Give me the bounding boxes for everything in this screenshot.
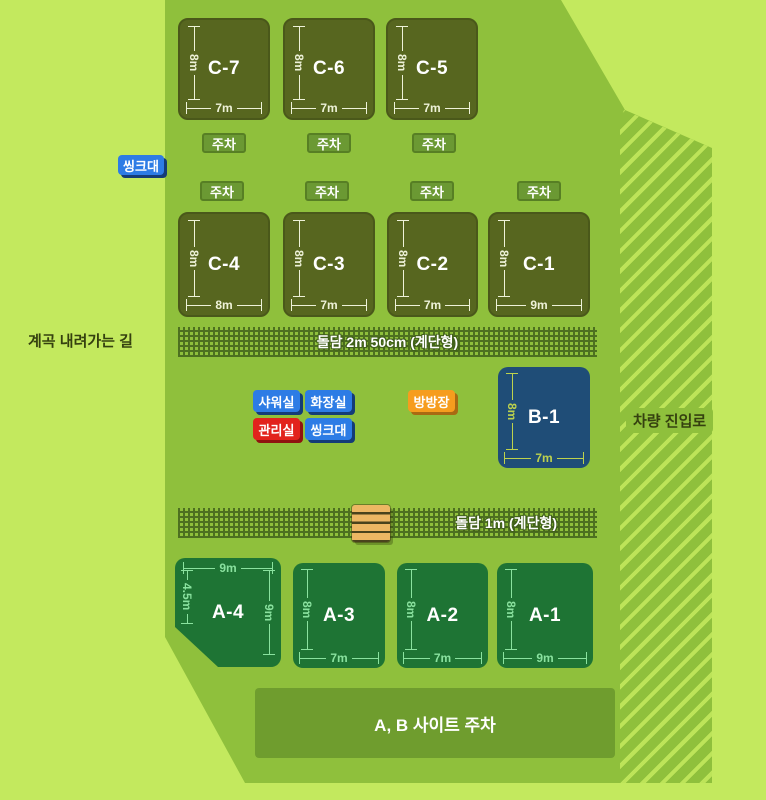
dimension-height: 8m	[293, 26, 305, 100]
parking-badge: 주차	[200, 181, 244, 201]
toilet-badge: 화장실	[305, 390, 352, 412]
stairs-icon	[352, 505, 390, 542]
dimension-width: 9m	[503, 652, 587, 664]
dimension-top: 9m	[183, 562, 273, 574]
site-a3[interactable]: 8m 7m A-3	[293, 563, 385, 668]
site-a1[interactable]: 8m 9m A-1	[497, 563, 593, 668]
site-label: B-1	[528, 407, 560, 429]
dimension-left: 4.5m	[181, 570, 193, 624]
site-label: C-3	[313, 254, 345, 276]
map-ground	[0, 0, 766, 800]
dimension-width: 7m	[403, 652, 482, 664]
site-label: C-6	[313, 58, 345, 80]
site-a2[interactable]: 8m 7m A-2	[397, 563, 488, 668]
stone-wall-upper: 돌담 2m 50cm (계단형)	[178, 327, 597, 357]
site-label: A-2	[426, 605, 458, 627]
vehicle-road-label: 차량 진입로	[626, 408, 713, 433]
vehicle-road-hatch	[620, 110, 712, 783]
dimension-width: 7m	[186, 102, 262, 114]
dimension-height: 8m	[188, 26, 200, 100]
shower-badge: 샤워실	[253, 390, 300, 412]
parking-badge: 주차	[307, 133, 351, 153]
dimension-height: 8m	[397, 220, 409, 297]
dimension-width: 8m	[186, 299, 262, 311]
site-c3[interactable]: 8m 7m C-3	[283, 212, 375, 317]
site-c2[interactable]: 8m 7m C-2	[387, 212, 478, 317]
site-label: C-4	[208, 254, 240, 276]
site-label: C-1	[523, 254, 555, 276]
ab-site-parking-label: A, B 사이트 주차	[374, 711, 496, 736]
dimension-height: 8m	[396, 26, 408, 100]
stone-wall-lower-label: 돌담 1m (계단형)	[455, 513, 557, 533]
parking-badge: 주차	[410, 181, 454, 201]
site-label: A-3	[323, 605, 355, 627]
dimension-width: 7m	[504, 452, 584, 464]
valley-path-label: 계곡 내려가는 길	[28, 330, 133, 351]
site-label: A-1	[529, 605, 561, 627]
dimension-height: 8m	[293, 220, 305, 297]
dimension-width: 7m	[394, 102, 470, 114]
site-c4[interactable]: 8m 8m C-4	[178, 212, 270, 317]
dimension-width: 7m	[299, 652, 379, 664]
site-c6[interactable]: 8m 7m C-6	[283, 18, 375, 120]
dimension-height: 8m	[301, 569, 313, 650]
trampoline-badge: 방방장	[408, 390, 455, 412]
parking-badge: 주차	[305, 181, 349, 201]
parking-badge: 주차	[202, 133, 246, 153]
dimension-width: 7m	[291, 102, 367, 114]
dimension-height: 8m	[505, 569, 517, 650]
dimension-width: 7m	[395, 299, 470, 311]
sink-badge: 씽크대	[305, 418, 352, 440]
site-label: C-2	[416, 254, 448, 276]
office-badge: 관리실	[253, 418, 300, 440]
stone-wall-upper-label: 돌담 2m 50cm (계단형)	[317, 332, 458, 352]
dimension-width: 7m	[291, 299, 367, 311]
site-c1[interactable]: 8m 9m C-1	[488, 212, 590, 317]
dimension-height: 8m	[405, 569, 417, 650]
dimension-height: 8m	[188, 220, 200, 297]
ab-site-parking-area: A, B 사이트 주차	[255, 688, 615, 758]
dimension-width: 9m	[496, 299, 582, 311]
site-label: C-7	[208, 58, 240, 80]
dimension-height: 8m	[506, 373, 518, 450]
parking-badge: 주차	[517, 181, 561, 201]
parking-badge: 주차	[412, 133, 456, 153]
dimension-right: 9m	[263, 570, 275, 655]
dimension-height: 8m	[498, 220, 510, 297]
sink-badge-left: 씽크대	[118, 155, 164, 175]
site-c5[interactable]: 8m 7m C-5	[386, 18, 478, 120]
site-b1[interactable]: 8m 7m B-1	[498, 367, 590, 468]
campground-map: 계곡 내려가는 길 차량 진입로 8m 7m C-7 8m 7m C-6 8m …	[0, 0, 766, 800]
site-label: C-5	[416, 58, 448, 80]
site-c7[interactable]: 8m 7m C-7	[178, 18, 270, 120]
site-label: A-4	[212, 602, 244, 624]
